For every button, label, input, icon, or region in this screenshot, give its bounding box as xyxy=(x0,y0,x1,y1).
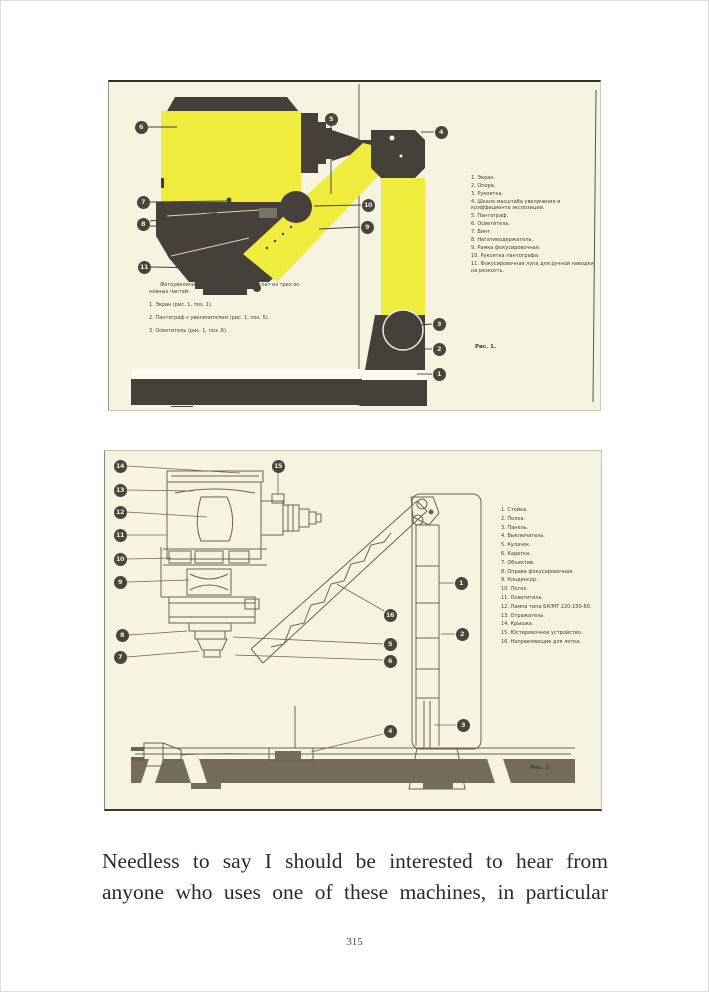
page-number: 315 xyxy=(0,936,709,948)
intro-item: 3. Осветитель (рис. 1, поз. 6). xyxy=(149,328,361,335)
parts-list-item: 11. Фокусировочная лупа для ручной навод… xyxy=(471,261,597,274)
parts-list-item: 7. Винт. xyxy=(471,229,597,235)
figure1-callout: 4 xyxy=(435,126,448,139)
figure2-callout: 5 xyxy=(384,638,397,651)
figure2-scan: 14 13 12 11 10 9 8 7 15 16 5 6 1 2 3 4 1… xyxy=(104,450,602,811)
intro-item: 1. Экран (рис. 1, поз. 1). xyxy=(149,302,361,309)
baseboard xyxy=(131,369,362,407)
parts-list-item: 16. Направляющие для лотка. xyxy=(501,640,597,646)
condenser xyxy=(187,569,231,595)
figure2-callout: 16 xyxy=(384,609,397,622)
body-text-line: Needless to say I should be interested t… xyxy=(102,846,608,877)
figure2-callout: 3 xyxy=(457,719,470,732)
figure2-caption: Рис. 2 xyxy=(530,765,549,771)
parts-list-item: 11. Осветитель. xyxy=(501,596,597,602)
figure1-callout: 10 xyxy=(362,199,375,212)
parts-list-item: 9. Конденсор. xyxy=(501,578,597,584)
figure2-callout: 2 xyxy=(456,628,469,641)
figure1-callout: 5 xyxy=(325,113,338,126)
parts-list-item: 5. Кулачок. xyxy=(501,543,597,549)
figure2-callout: 11 xyxy=(114,529,127,542)
parts-list-item: 4. Шкала масштаба увеличения и коэффицие… xyxy=(471,199,597,212)
intro-line: новных частей: xyxy=(149,289,361,296)
figure1-scan: 6 7 8 11 5 4 10 9 3 2 1 Фотоувеличитель … xyxy=(108,80,601,411)
parts-list-item: 6. Каретка. xyxy=(501,552,597,558)
parts-list-item: 9. Рамка фокусировочная. xyxy=(471,245,597,251)
parts-list-item: 8. Оправа фокусировочная. xyxy=(501,570,597,576)
parts-list-item: 15. Юстировочное устройство. xyxy=(501,631,597,637)
screw-dot xyxy=(227,198,232,203)
figure1-callout: 2 xyxy=(433,343,446,356)
figure2-callout: 1 xyxy=(455,577,468,590)
figure2-callout: 7 xyxy=(114,651,127,664)
figure2-callout: 13 xyxy=(114,484,127,497)
figure1-parts-list: 1. Экран. 2. Опора. 3. Рукоятка. 4. Шкал… xyxy=(471,175,597,276)
parts-list-item: 2. Опора. xyxy=(471,183,597,189)
parts-list-item: 3. Панель. xyxy=(501,526,597,532)
parts-list-item: 8. Негативодержатель. xyxy=(471,237,597,243)
parts-list-item: 2. Полка. xyxy=(501,517,597,523)
arm-and-spring xyxy=(251,497,439,663)
figure1-callout: 9 xyxy=(361,221,374,234)
figure2-callout: 9 xyxy=(114,576,127,589)
figure1-callout: 6 xyxy=(135,121,148,134)
column-section xyxy=(409,494,481,789)
pantograph-knob xyxy=(280,191,312,223)
intro-line: Фотоувеличитель конструктивно состоит из… xyxy=(149,282,361,289)
figure1-callout: 1 xyxy=(433,368,446,381)
book-page: 6 7 8 11 5 4 10 9 3 2 1 Фотоувеличитель … xyxy=(0,0,709,992)
parts-list-item: 10. Рукоятка пантографа. xyxy=(471,253,597,259)
parts-list-item: 3. Рукоятка. xyxy=(471,191,597,197)
parts-list-item: 6. Осветитель. xyxy=(471,221,597,227)
figure1-caption: Рис. 1. xyxy=(475,344,496,350)
parts-list-item: 5. Пантограф. xyxy=(471,213,597,219)
figure2-callout: 10 xyxy=(114,553,127,566)
parts-list-item: 1. Стойка. xyxy=(501,508,597,514)
parts-list-item: 4. Выключатель. xyxy=(501,534,597,540)
spring xyxy=(271,533,391,647)
figure1-callout: 3 xyxy=(433,318,446,331)
lamp-socket xyxy=(261,501,283,535)
column-knob xyxy=(383,310,423,350)
figure2-callout: 14 xyxy=(114,460,127,473)
lamphouse-highlight xyxy=(161,111,301,202)
parts-list-item: 13. Отражатель. xyxy=(501,614,597,620)
lens-mount xyxy=(189,623,231,631)
figure2-leader-lines xyxy=(127,466,456,752)
base-and-plug xyxy=(131,706,575,789)
parts-list-item: 14. Крышка. xyxy=(501,622,597,628)
figure2-callout: 8 xyxy=(116,629,129,642)
figure2-callout: 6 xyxy=(384,655,397,668)
enlarger-head-cap xyxy=(166,97,300,113)
parts-list-item: 12. Лампа типа БК/МТ 220-230-60. xyxy=(501,605,597,611)
parts-list-item: 7. Объектив. xyxy=(501,561,597,567)
adjuster-knob xyxy=(272,494,284,503)
figure2-callout: 15 xyxy=(272,460,285,473)
intro-item: 2. Пантограф с увеличителем (рис. 1, поз… xyxy=(149,315,361,322)
figure1-callout: 11 xyxy=(138,261,151,274)
figure2-callout: 12 xyxy=(114,506,127,519)
figure1-intro-paragraph: Фотоувеличитель конструктивно состоит из… xyxy=(149,282,361,335)
figure2-parts-list: 1. Стойка. 2. Полка. 3. Панель. 4. Выклю… xyxy=(501,508,597,649)
figure2-callout: 4 xyxy=(384,725,397,738)
body-paragraph: Needless to say I should be interested t… xyxy=(102,846,608,908)
enlarger-head-section xyxy=(161,471,321,657)
figure1-callout: 8 xyxy=(137,218,150,231)
figure1-callout: 7 xyxy=(137,196,150,209)
parts-list-item: 10. Лоток. xyxy=(501,587,597,593)
parts-list-item: 1. Экран. xyxy=(471,175,597,181)
body-text-line: anyone who uses one of these machines, i… xyxy=(102,877,608,908)
lamp-bulb xyxy=(197,497,232,541)
